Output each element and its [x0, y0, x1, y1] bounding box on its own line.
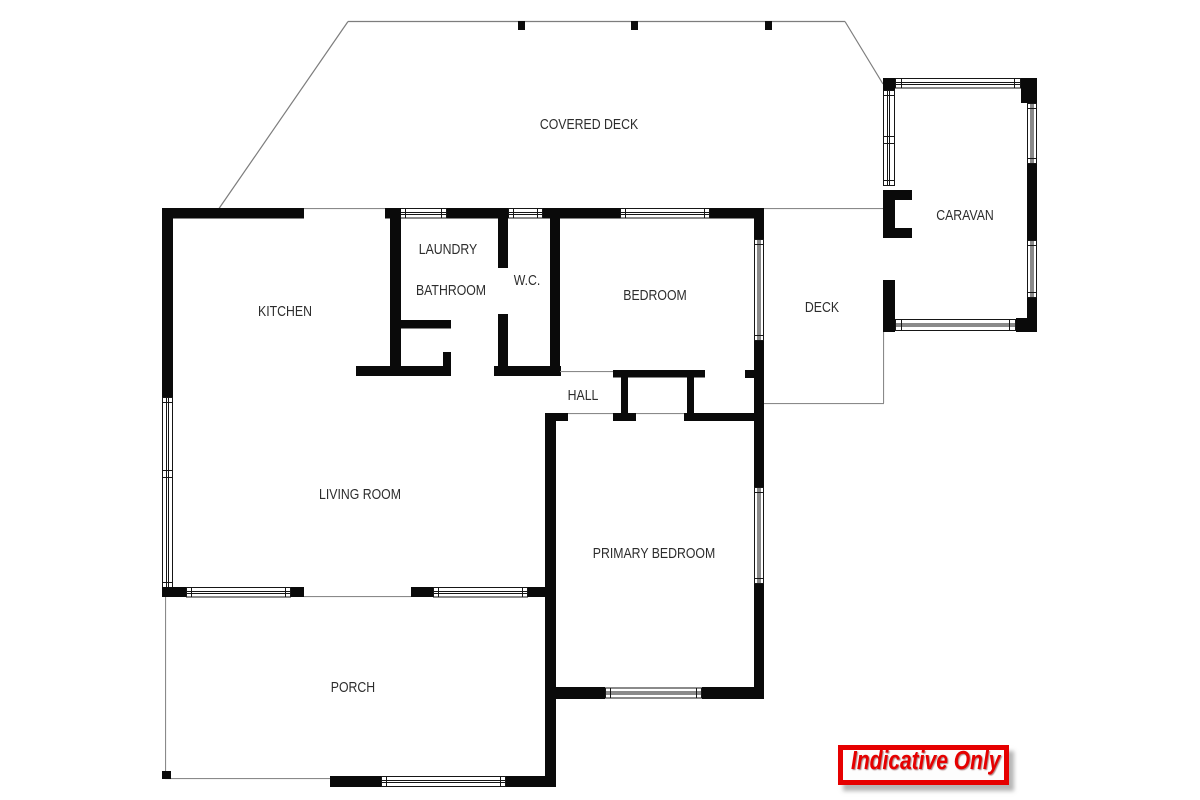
- svg-text:CARAVAN: CARAVAN: [936, 207, 994, 223]
- svg-text:HALL: HALL: [568, 387, 599, 403]
- svg-text:LAUNDRY: LAUNDRY: [419, 241, 478, 257]
- svg-text:DECK: DECK: [805, 299, 839, 315]
- svg-text:PORCH: PORCH: [331, 679, 375, 695]
- svg-text:LIVING ROOM: LIVING ROOM: [319, 486, 401, 502]
- svg-text:PRIMARY BEDROOM: PRIMARY BEDROOM: [593, 545, 715, 561]
- svg-text:BATHROOM: BATHROOM: [416, 282, 486, 298]
- svg-text:KITCHEN: KITCHEN: [258, 303, 312, 319]
- svg-text:COVERED DECK: COVERED DECK: [540, 116, 638, 132]
- svg-text:BEDROOM: BEDROOM: [623, 287, 686, 303]
- svg-text:W.C.: W.C.: [514, 272, 541, 288]
